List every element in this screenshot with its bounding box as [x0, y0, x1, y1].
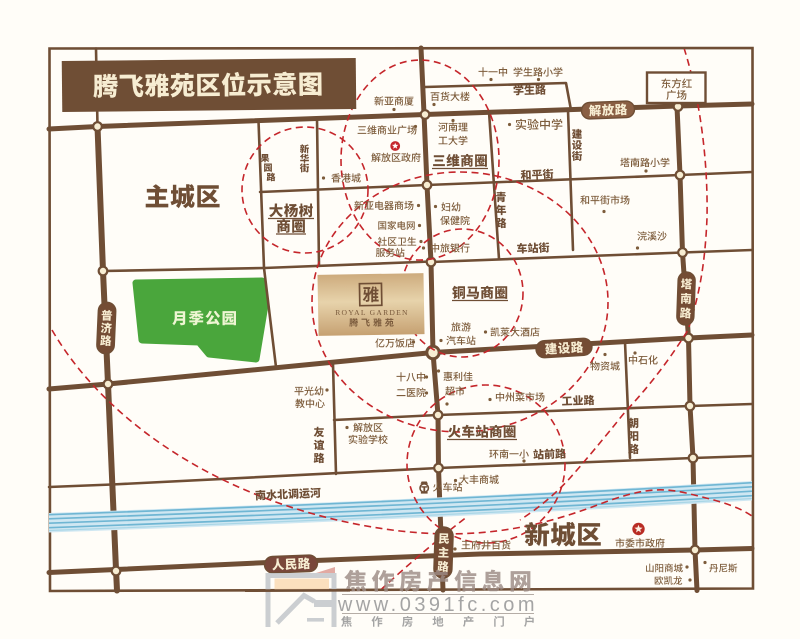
svg-text:www.0391fc.com: www.0391fc.com [337, 594, 538, 616]
svg-text:ROYAL GARDEN: ROYAL GARDEN [335, 308, 409, 317]
